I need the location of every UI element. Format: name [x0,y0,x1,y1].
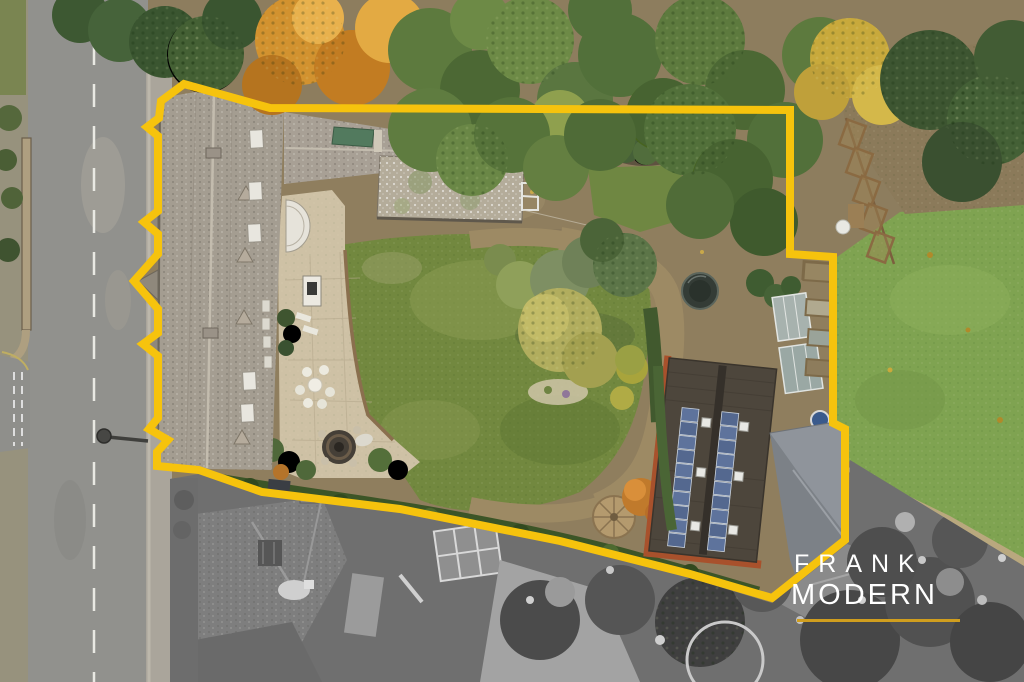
wood-pile [848,204,864,228]
olive-bush [615,345,645,375]
logo-underline [797,619,960,622]
logo-line-frank: FRANK [794,552,960,577]
garden-table [836,220,850,234]
garden-shed-roof [332,127,374,147]
neighbour-greenhouse [434,523,502,581]
aerial-property-photo: FRANK MODERN [0,0,1024,682]
logo-line-modern: MODERN [791,581,960,610]
trampoline [682,273,718,309]
agency-watermark: FRANK MODERN [791,552,960,622]
side-street [0,352,30,452]
shed-path [374,130,382,152]
